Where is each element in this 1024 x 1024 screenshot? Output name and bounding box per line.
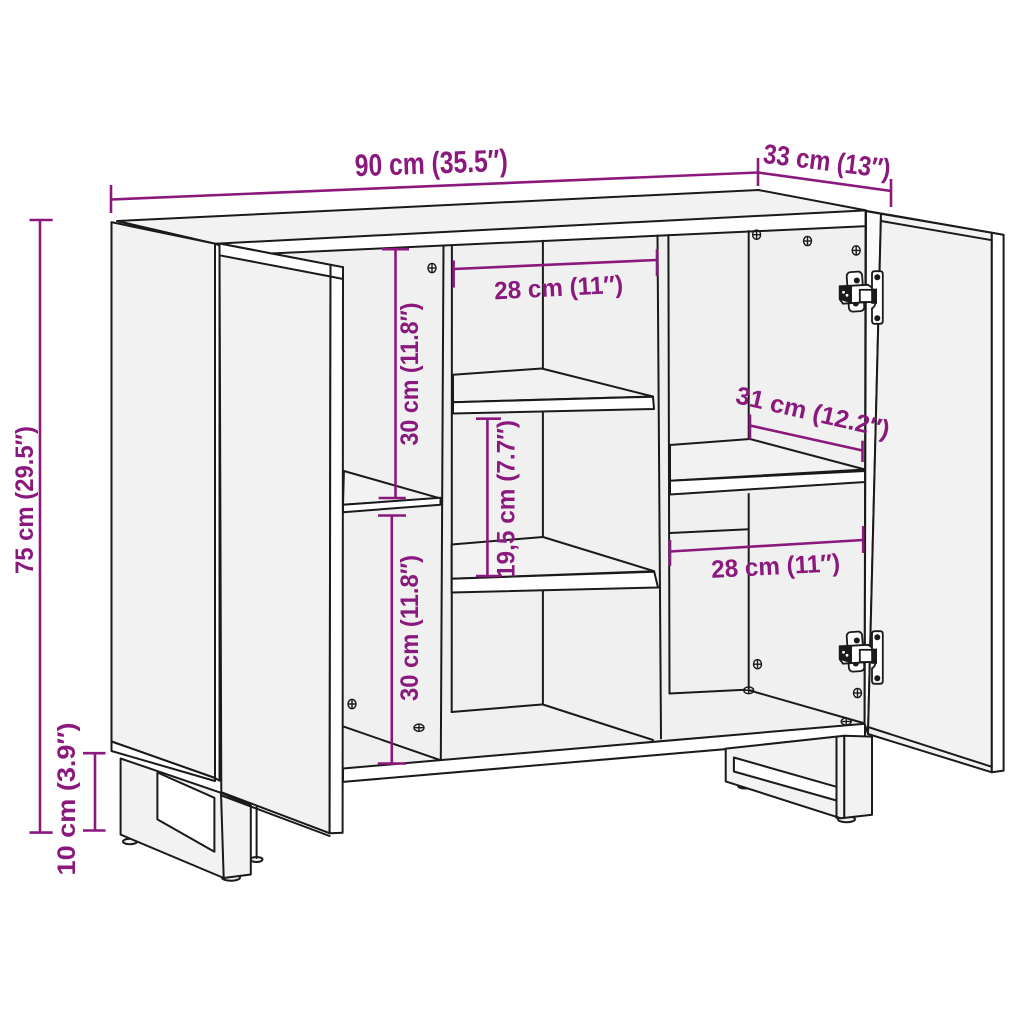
svg-text:75 cm (29.5″): 75 cm (29.5″) [11,426,39,574]
svg-text:30 cm (11.8″): 30 cm (11.8″) [396,555,424,701]
svg-text:90 cm (35.5″): 90 cm (35.5″) [354,143,508,183]
svg-text:19,5 cm (7.7″): 19,5 cm (7.7″) [493,420,521,578]
svg-text:30 cm (11.8″): 30 cm (11.8″) [396,303,424,446]
svg-text:10 cm (3.9″): 10 cm (3.9″) [53,723,81,876]
